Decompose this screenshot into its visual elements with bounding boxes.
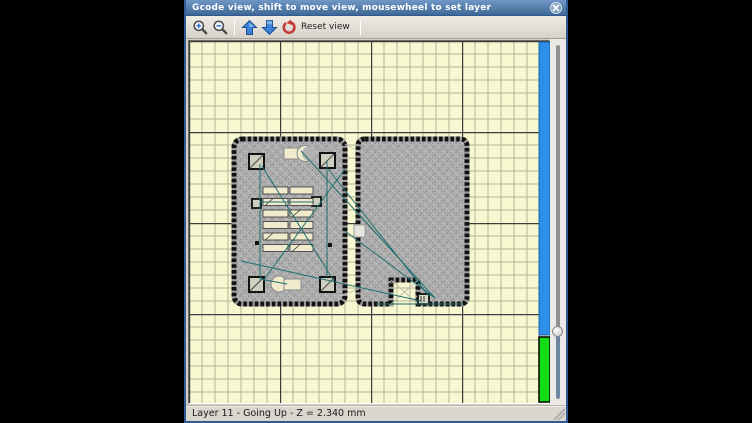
toolbar-separator <box>360 20 361 35</box>
magnifier-plus-icon <box>192 19 209 36</box>
window-titlebar[interactable]: Gcode view, shift to move view, mousewhe… <box>186 0 566 16</box>
layers-above-bar <box>539 42 550 335</box>
zoom-in-button[interactable] <box>190 18 210 37</box>
gcode-canvas[interactable] <box>188 40 550 404</box>
arrow-up-icon <box>241 19 258 36</box>
layers-below-bar <box>539 337 550 402</box>
arrow-down-icon <box>261 19 278 36</box>
scrollbar-track-lower[interactable] <box>556 331 560 399</box>
toolbar: Reset view <box>186 16 566 39</box>
zoom-out-button[interactable] <box>210 18 230 37</box>
reset-view-button[interactable] <box>279 18 299 37</box>
magnifier-minus-icon <box>212 19 229 36</box>
main-area <box>186 39 566 405</box>
keyhole-top <box>284 146 316 162</box>
screen: Gcode view, shift to move view, mousewhe… <box>0 0 752 423</box>
layer-up-button[interactable] <box>239 18 259 37</box>
layer-down-button[interactable] <box>259 18 279 37</box>
status-bar: Layer 11 - Going Up - Z = 2.340 mm <box>186 405 566 421</box>
resize-grip[interactable] <box>554 409 565 420</box>
toolbar-separator <box>234 20 235 35</box>
gcode-object-left <box>234 139 345 304</box>
layer-progress-bar <box>539 42 550 402</box>
close-icon[interactable] <box>550 2 562 14</box>
layer-status-text: Layer 11 - Going Up - Z = 2.340 mm <box>186 408 366 419</box>
reset-view-label[interactable]: Reset view <box>299 22 356 32</box>
scrollbar-thumb[interactable] <box>552 326 563 337</box>
gcode-view-window: Gcode view, shift to move view, mousewhe… <box>184 0 568 423</box>
window-title: Gcode view, shift to move view, mousewhe… <box>186 3 491 13</box>
gcode-drawing <box>189 41 551 403</box>
scrollbar-track-upper[interactable] <box>556 45 560 331</box>
close-x-glyph <box>551 3 561 13</box>
undo-arrow-icon <box>281 19 298 36</box>
layer-scrollbar[interactable] <box>550 39 566 405</box>
